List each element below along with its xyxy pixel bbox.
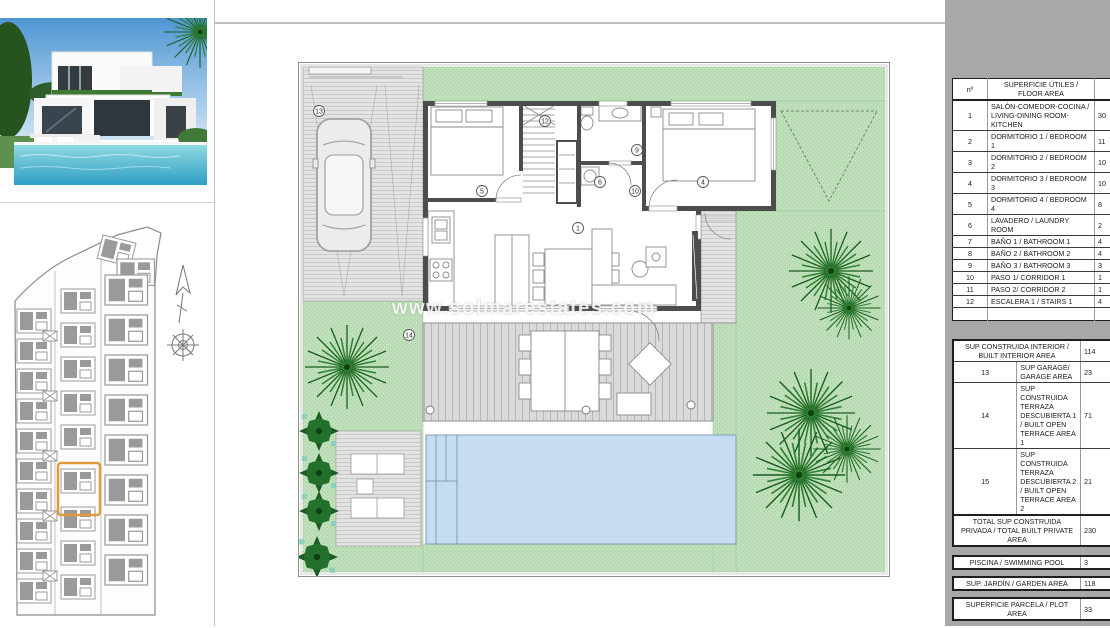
- table-row: 10PASO 1/ CORRIDOR 11: [953, 272, 1110, 284]
- site-plan: [5, 225, 210, 623]
- pool-photo: [14, 142, 207, 185]
- table-row: 11PASO 2/ CORRIDOR 21: [953, 284, 1110, 296]
- table-header-row: nº SUPERFICIE ÚTILES / FLOOR AREA TIP: [953, 79, 1110, 101]
- areas-panel: nº SUPERFICIE ÚTILES / FLOOR AREA TIP 1S…: [945, 0, 1110, 626]
- table-row: 3DORMITORIO 2 / BEDROOM 210: [953, 152, 1110, 173]
- pool: [426, 435, 736, 544]
- room-label-laundry: 6: [598, 180, 602, 187]
- car-icon: [313, 119, 375, 251]
- room-label-stairs: 12: [541, 119, 549, 126]
- table-row: 8BAÑO 2 / BATHROOM 24: [953, 248, 1110, 260]
- col-header-tip: TIP: [1095, 79, 1110, 101]
- table-row: 12ESCALERA 1 / STAIRS 14: [953, 296, 1110, 308]
- pool-area-table: PISCINA / SWIMMING POOL3: [952, 555, 1110, 570]
- garden-area-table: SUP. JARDÍN / GARDEN AREA118: [952, 576, 1110, 591]
- north-compass: [167, 265, 199, 361]
- pool-area-row: PISCINA / SWIMMING POOL3: [953, 556, 1110, 569]
- room-label-bath: 9: [635, 148, 639, 155]
- plot-area-row: SUPERFICIE PARCELA / PLOT AREA33: [953, 598, 1110, 620]
- vertical-divider: [214, 0, 215, 626]
- table-row: 7BAÑO 1 / BATHROOM 14: [953, 236, 1110, 248]
- room-label-bedroom: 4: [701, 180, 705, 187]
- terrace-furniture: [30, 134, 100, 142]
- col-header-num: nº: [953, 79, 988, 101]
- col-header-area: SUPERFICIE ÚTILES / FLOOR AREA: [988, 79, 1095, 101]
- table-row: TOTAL SUP CONSTRUIDA PRIVADA / TOTAL BUI…: [953, 515, 1110, 546]
- room-label-terrace: 14: [405, 333, 413, 340]
- table-row: 6LAVADERO / LAUNDRY ROOM2: [953, 215, 1110, 236]
- room-label-garage: 13: [315, 109, 323, 116]
- watermark: www.solmarestates.com: [392, 297, 656, 320]
- table-row: 13SUP GARAGE/ GARAGE AREA23: [953, 362, 1110, 383]
- photo-rule: [0, 202, 214, 203]
- table-row: 2DORMITORIO 1 / BEDROOM 111: [953, 131, 1110, 152]
- table-row: 15SUP CONSTRUIDA TERRAZA DESCUBIERTA 2 /…: [953, 449, 1110, 516]
- room-label-corridor: 10: [631, 189, 639, 196]
- header-rule: [215, 22, 945, 24]
- table-row: SUP CONSTRUIDA INTERIOR / BUILT INTERIOR…: [953, 340, 1110, 362]
- garage-area: [303, 67, 423, 301]
- room-label-living: 1: [576, 226, 580, 233]
- room-label-bedroom4: 5: [480, 189, 484, 196]
- sunbathing-terrace: [336, 431, 421, 546]
- table-row: 9BAÑO 3 / BATHROOM 33: [953, 260, 1110, 272]
- table-row: 5DORMITORIO 4 / BEDROOM 48: [953, 194, 1110, 215]
- built-areas-table: SUP CONSTRUIDA INTERIOR / BUILT INTERIOR…: [952, 339, 1110, 547]
- table-row: 4DORMITORIO 3 / BEDROOM 310: [953, 173, 1110, 194]
- table-row: 14SUP CONSTRUIDA TERRAZA DESCUBIERTA 1 /…: [953, 383, 1110, 449]
- plot-area-table: SUPERFICIE PARCELA / PLOT AREA33: [952, 597, 1110, 621]
- floor-areas-table: nº SUPERFICIE ÚTILES / FLOOR AREA TIP 1S…: [952, 78, 1110, 321]
- garden-area-row: SUP. JARDÍN / GARDEN AREA118: [953, 577, 1110, 590]
- table-row: 1SALÓN-COMEDOR-COCINA / LIVING-DINING RO…: [953, 100, 1110, 131]
- table-empty-row: [953, 308, 1110, 321]
- villa-photo: [0, 18, 207, 185]
